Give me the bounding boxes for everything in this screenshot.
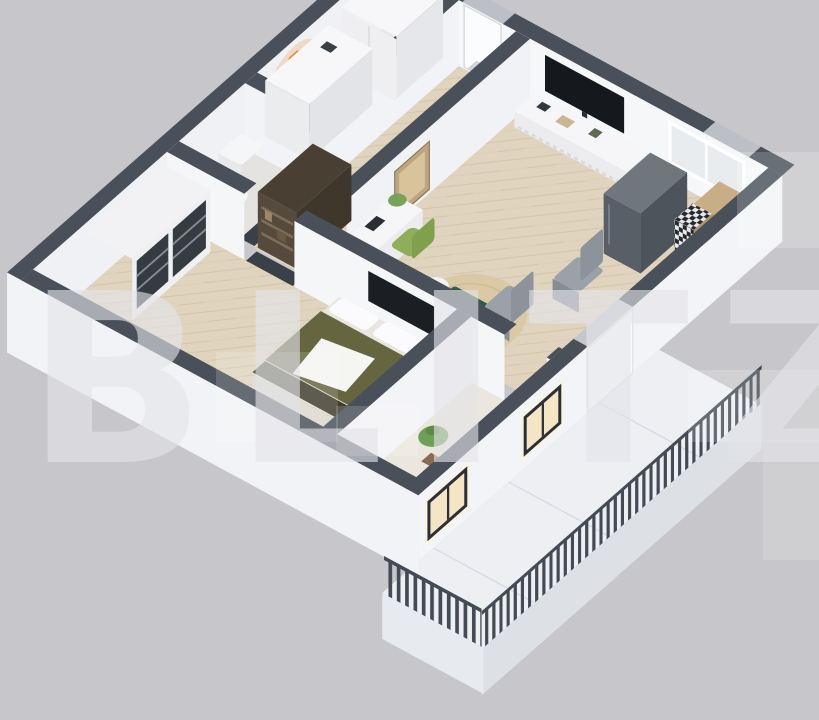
floor-plan-render: BLITZ xyxy=(0,0,819,720)
watermark-text: BLITZ xyxy=(26,243,819,518)
floor-plan-scene: BLITZ xyxy=(0,0,819,720)
